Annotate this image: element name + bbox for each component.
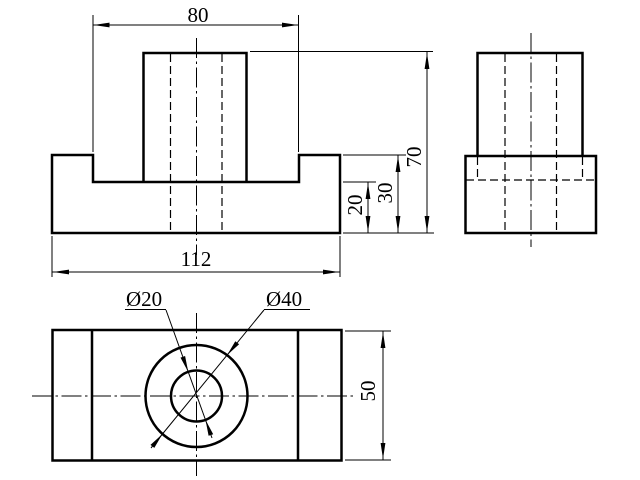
dimension-total-height: 70 <box>250 52 434 234</box>
arrowhead-icon <box>206 420 214 436</box>
side-view <box>466 33 597 247</box>
dim-total-height-label: 70 <box>402 147 426 168</box>
engineering-drawing-page: 80 112 70 30 20 50 <box>0 0 640 480</box>
arrowhead-icon <box>282 23 298 28</box>
dimension-boss-diameter: Ø40 <box>151 287 311 448</box>
arrowhead-icon <box>181 356 189 372</box>
dim-base-length-label: 112 <box>181 247 212 271</box>
arrowhead-icon <box>396 216 401 232</box>
arrowhead-icon <box>425 53 430 69</box>
dim-depth-label: 50 <box>356 381 380 402</box>
dim-slot-width-label: 80 <box>188 3 209 27</box>
dimension-base-length: 112 <box>52 236 340 277</box>
arrowhead-icon <box>396 156 401 172</box>
top-view <box>32 313 355 476</box>
arrowhead-icon <box>227 341 239 355</box>
dimension-hole-diameter: Ø20 <box>125 287 213 438</box>
side-boss-outline <box>478 53 583 155</box>
dimension-slot-floor-height: 20 <box>343 182 376 233</box>
arrowhead-icon <box>151 434 163 448</box>
front-boss-outline <box>144 53 247 182</box>
arrowhead-icon <box>53 270 69 275</box>
arrowhead-icon <box>366 216 371 232</box>
orthographic-views-drawing: 80 112 70 30 20 50 <box>0 0 640 480</box>
dim-boss-diameter-label: Ø40 <box>266 287 302 311</box>
dimension-base-height: 30 <box>343 155 406 233</box>
arrowhead-icon <box>381 332 386 348</box>
arrowhead-icon <box>381 443 386 459</box>
dim-hole-diameter-label: Ø20 <box>126 287 162 311</box>
dimension-slot-width: 80 <box>93 3 299 152</box>
arrowhead-icon <box>425 216 430 232</box>
arrowhead-icon <box>94 23 110 28</box>
front-view <box>52 38 340 255</box>
dim-base-height-label: 30 <box>373 183 397 204</box>
arrowhead-icon <box>323 270 339 275</box>
dim-slot-floor-height-label: 20 <box>343 195 367 216</box>
